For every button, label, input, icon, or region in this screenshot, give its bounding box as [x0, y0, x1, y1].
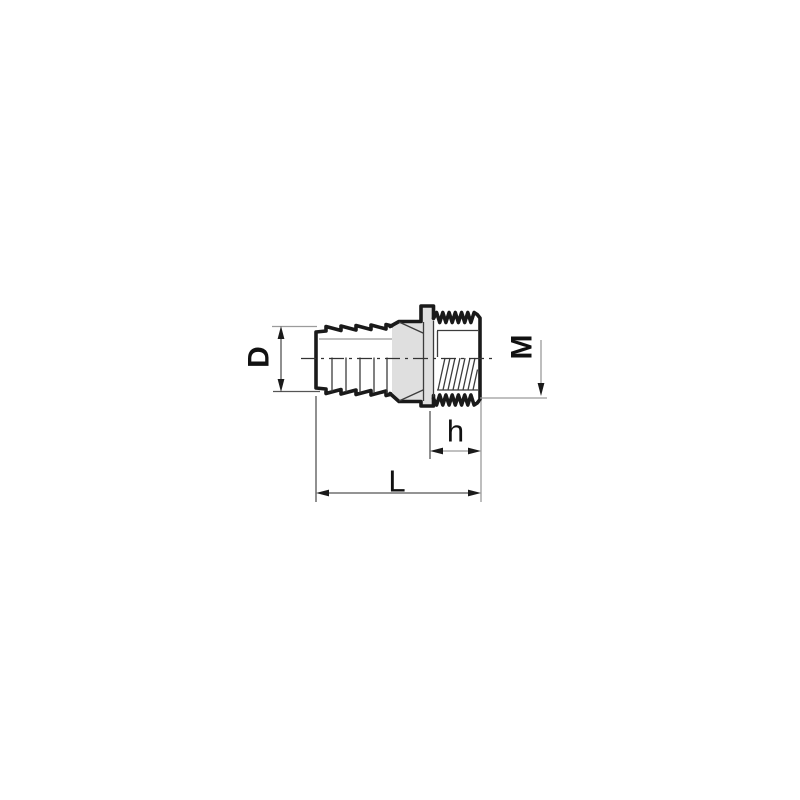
- dimension-h: h: [430, 401, 481, 502]
- dimension-l: L: [316, 396, 481, 502]
- hose-barb-fitting: [301, 306, 492, 406]
- thread-root-lines: [437, 331, 478, 391]
- dim-m-arrow-down: [538, 383, 545, 396]
- technical-drawing: D M h L: [0, 0, 800, 800]
- dim-h-arrow-left: [430, 448, 443, 455]
- dim-l-arrow-right: [468, 490, 481, 497]
- dim-label-h: h: [447, 414, 464, 449]
- thread-hatch-lines: [438, 358, 478, 390]
- dim-d-arrow-up: [278, 326, 285, 339]
- dim-label-m: M: [506, 335, 539, 360]
- dim-h-arrow-right: [468, 448, 481, 455]
- dimension-m: M: [480, 335, 547, 399]
- dim-d-arrow-down: [278, 379, 285, 392]
- dim-l-arrow-left: [316, 490, 329, 497]
- dim-label-d: D: [243, 346, 276, 368]
- dim-label-l: L: [388, 464, 405, 499]
